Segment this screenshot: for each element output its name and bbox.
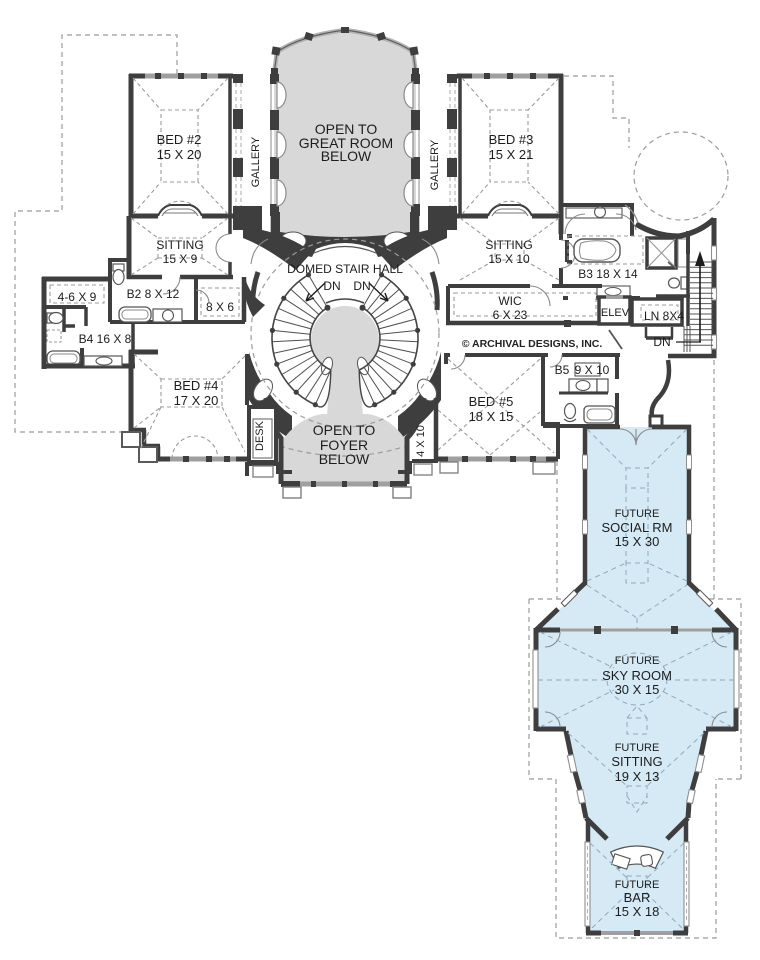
svg-text:© ARCHIVAL DESIGNS, INC.: © ARCHIVAL DESIGNS, INC.: [462, 338, 603, 350]
svg-text:17 X 20: 17 X 20: [174, 393, 219, 408]
svg-text:SKY ROOM: SKY ROOM: [602, 668, 672, 683]
svg-text:B2 8 X 12: B2 8 X 12: [127, 287, 180, 301]
svg-text:15 X 9: 15 X 9: [163, 252, 198, 266]
svg-text:4 X 10: 4 X 10: [415, 425, 427, 457]
svg-text:WIC: WIC: [498, 294, 522, 308]
svg-text:15 X 18: 15 X 18: [615, 904, 660, 919]
svg-text:FUTURE: FUTURE: [615, 508, 660, 520]
svg-text:6 X 23: 6 X 23: [493, 308, 528, 322]
svg-text:19 X 13: 19 X 13: [615, 769, 660, 784]
svg-text:BELOW: BELOW: [321, 148, 372, 164]
svg-text:ELEV: ELEV: [601, 307, 630, 319]
svg-text:B5: B5: [555, 363, 570, 377]
svg-text:DN: DN: [653, 335, 670, 349]
svg-text:15 X 10: 15 X 10: [488, 252, 530, 266]
svg-text:FUTURE: FUTURE: [615, 655, 660, 667]
svg-text:FUTURE: FUTURE: [615, 742, 660, 754]
svg-text:OPEN TO: OPEN TO: [313, 422, 376, 438]
svg-text:BED #3: BED #3: [489, 132, 534, 147]
svg-text:8 X 6: 8 X 6: [206, 300, 234, 314]
svg-text:DOMED STAIR HALL: DOMED STAIR HALL: [287, 262, 403, 276]
svg-text:4-6 X 9: 4-6 X 9: [58, 290, 97, 304]
svg-text:B3 18 X 14: B3 18 X 14: [578, 267, 638, 281]
svg-text:DESK: DESK: [254, 420, 266, 451]
svg-text:LN 8X4: LN 8X4: [644, 309, 684, 323]
svg-text:15 X 20: 15 X 20: [157, 147, 202, 162]
svg-text:15 X 21: 15 X 21: [489, 147, 534, 162]
svg-text:15 X 30: 15 X 30: [615, 534, 660, 549]
svg-text:GALLERY: GALLERY: [250, 136, 262, 187]
svg-text:BED #4: BED #4: [174, 378, 219, 393]
svg-text:SITTING: SITTING: [485, 238, 532, 252]
svg-text:BED #5: BED #5: [469, 394, 514, 409]
svg-text:9 X 10: 9 X 10: [575, 363, 610, 377]
svg-text:DN: DN: [323, 279, 340, 293]
svg-text:BED #2: BED #2: [157, 132, 202, 147]
svg-text:SITTING: SITTING: [156, 238, 203, 252]
svg-text:SITTING: SITTING: [611, 754, 662, 769]
svg-text:DN: DN: [353, 279, 370, 293]
svg-text:B4 16 X 8: B4 16 X 8: [79, 332, 132, 346]
svg-text:GALLERY: GALLERY: [429, 139, 441, 190]
svg-text:SOCIAL RM: SOCIAL RM: [601, 520, 672, 535]
svg-text:30 X 15: 30 X 15: [615, 682, 660, 697]
svg-text:18 X 15: 18 X 15: [469, 409, 514, 424]
svg-text:BAR: BAR: [624, 890, 651, 905]
svg-text:BELOW: BELOW: [319, 451, 370, 467]
